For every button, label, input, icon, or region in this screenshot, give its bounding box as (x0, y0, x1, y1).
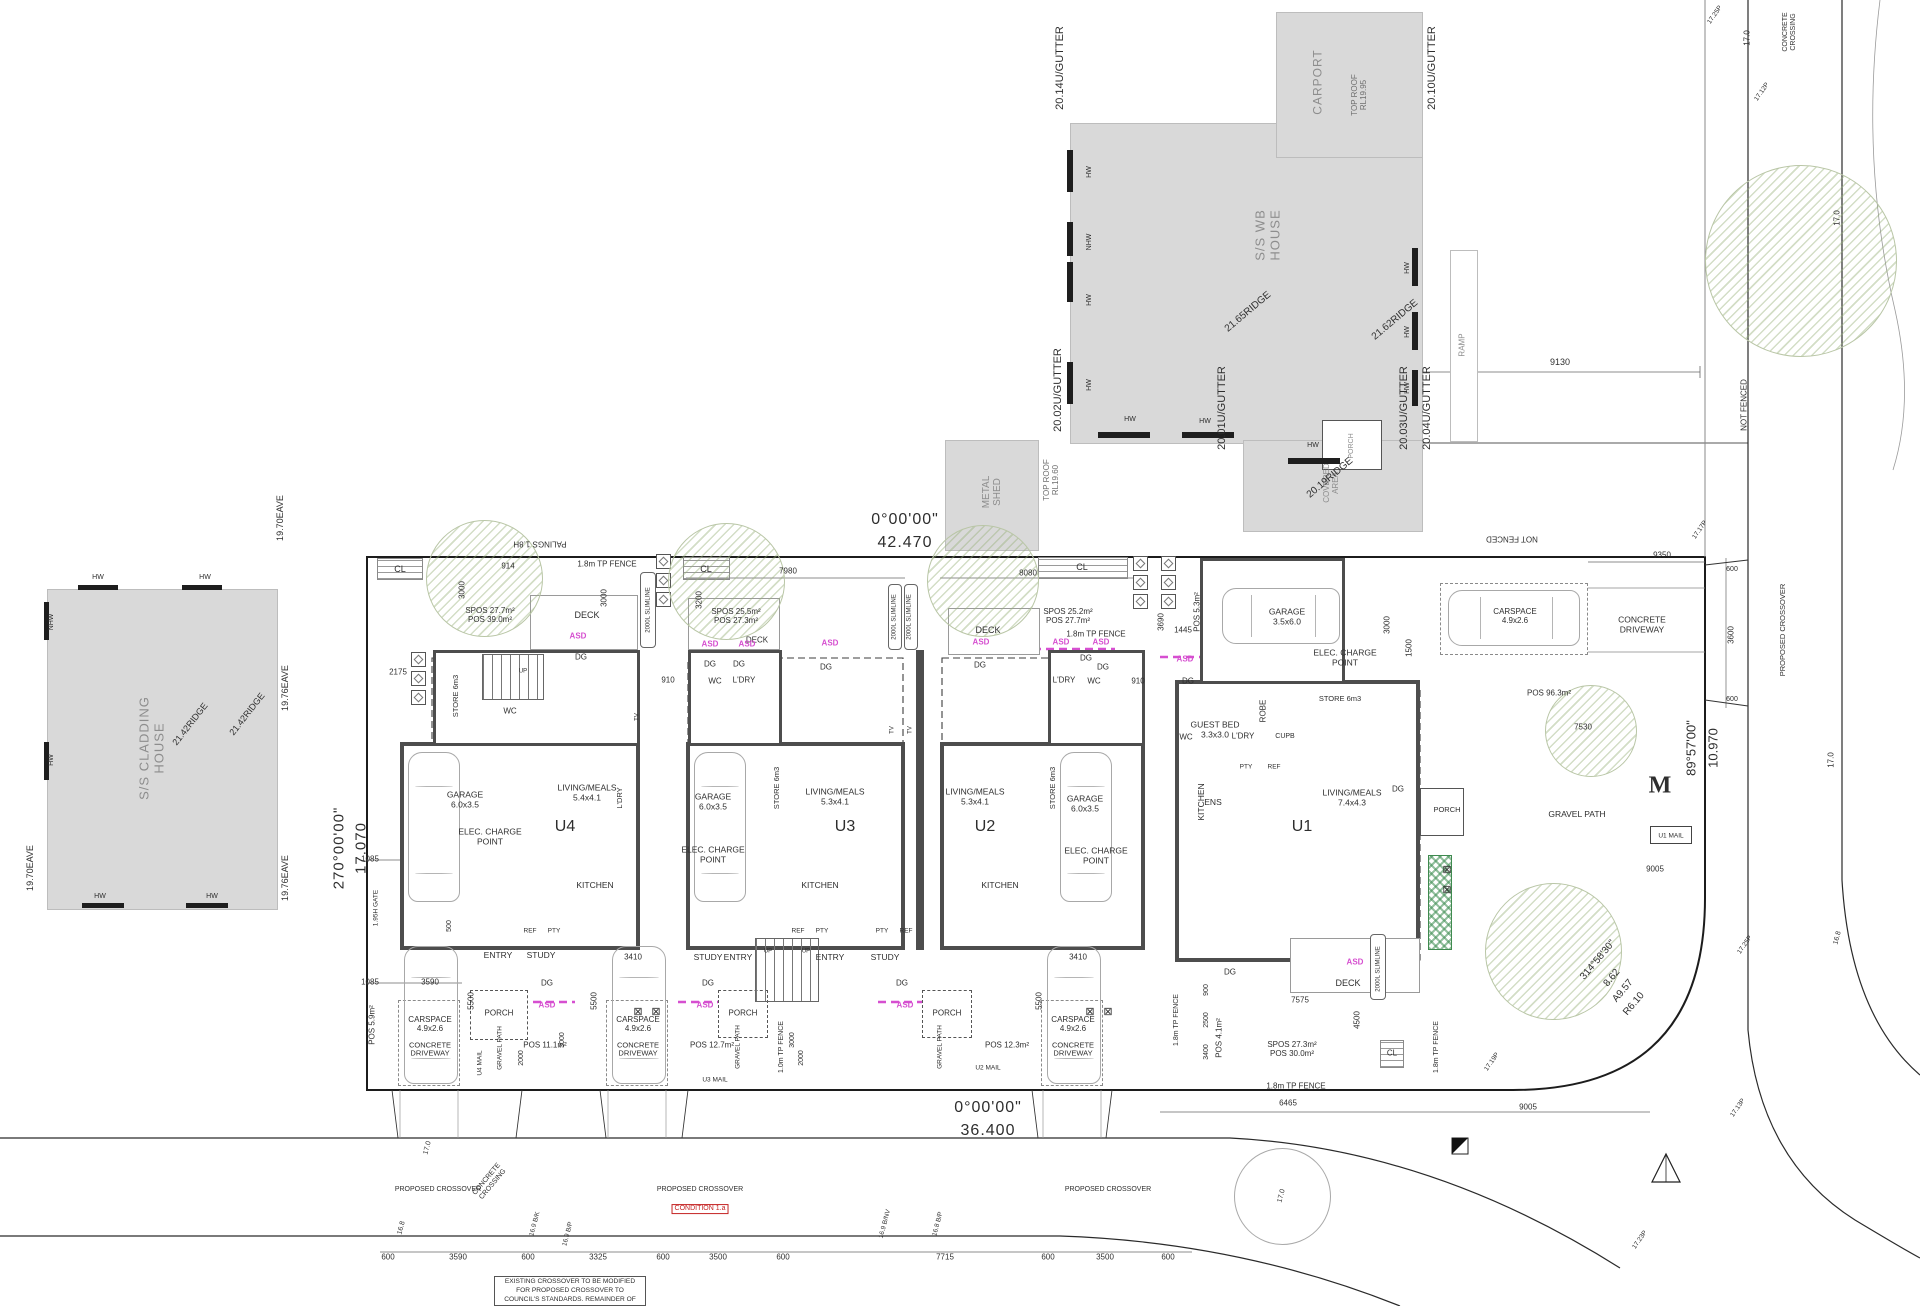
window-marker (1182, 432, 1234, 438)
window-marker (1288, 458, 1340, 464)
unit-u2-module (940, 742, 1145, 950)
water-tank (1370, 934, 1386, 1000)
window-marker (182, 585, 222, 590)
window-marker (1067, 362, 1073, 404)
clothesline-u2u1 (1038, 557, 1128, 579)
unit-u1-deck (1290, 938, 1420, 993)
window-marker (1098, 432, 1150, 438)
window-marker (1412, 248, 1418, 286)
bin-box (1133, 556, 1148, 571)
window-marker (82, 903, 124, 908)
window-marker (1412, 312, 1418, 350)
bin-box (1161, 594, 1176, 609)
tree (668, 523, 785, 640)
landscape-strip (1428, 855, 1452, 950)
unit-u4-deck (530, 595, 638, 650)
note-line: COUNCIL'S STANDARDS. REMAINDER OF (497, 1296, 643, 1305)
site-plan-drawing: S/S CLADDING HOUSE S/S WB HOUSE CARPORT … (0, 0, 1920, 1306)
unit-u2-porch (922, 990, 972, 1038)
car-outline (612, 946, 666, 1084)
unit-u1-porch (1420, 788, 1464, 836)
party-wall (916, 650, 924, 950)
existing-top-house (1070, 123, 1423, 444)
car-outline (1047, 946, 1101, 1084)
clothesline-u1 (1380, 1040, 1404, 1068)
window-marker (186, 903, 228, 908)
window-marker (1412, 370, 1418, 406)
unit-u3-wing (688, 650, 782, 746)
car-outline (408, 752, 460, 902)
car-outline (1222, 588, 1340, 644)
water-tank (888, 584, 902, 650)
water-tank (904, 584, 918, 650)
tree-outline (1234, 1148, 1331, 1245)
unit-u4-porch (470, 990, 528, 1040)
u1-mailbox (1650, 826, 1692, 844)
window-marker (1067, 150, 1073, 192)
bin-box (411, 690, 426, 705)
bin-box (1133, 594, 1148, 609)
car-outline (1448, 590, 1580, 646)
bin-box (411, 652, 426, 667)
stair-central (755, 938, 819, 1002)
car-outline (404, 946, 458, 1084)
note-line: EXISTING CROSSOVER TO BE MODIFIED (497, 1278, 643, 1287)
note-line: FOR PROPOSED CROSSOVER TO (497, 1287, 643, 1296)
existing-ramp (1450, 250, 1478, 442)
window-marker (1067, 222, 1073, 256)
window-marker (1067, 262, 1073, 302)
tree (1705, 165, 1897, 357)
bin-box (1133, 575, 1148, 590)
car-outline (694, 752, 746, 902)
existing-carport (1276, 12, 1423, 158)
crossover-note: EXISTING CROSSOVER TO BE MODIFIED FOR PR… (494, 1276, 646, 1306)
tree (426, 520, 543, 637)
tree (927, 525, 1039, 637)
tree (1485, 883, 1622, 1020)
window-marker (44, 602, 49, 640)
unit-u1-module (1175, 680, 1420, 962)
unit-u2-wing (1048, 650, 1145, 746)
window-marker (78, 585, 118, 590)
bin-box (411, 671, 426, 686)
car-outline (1060, 752, 1112, 902)
clothesline-u4 (377, 558, 423, 580)
bin-box (1161, 575, 1176, 590)
water-tank (640, 572, 656, 648)
bin-box (1161, 556, 1176, 571)
tree (1545, 685, 1637, 777)
existing-left-house (47, 589, 278, 910)
window-marker (44, 742, 49, 780)
stair-u4 (482, 654, 544, 700)
